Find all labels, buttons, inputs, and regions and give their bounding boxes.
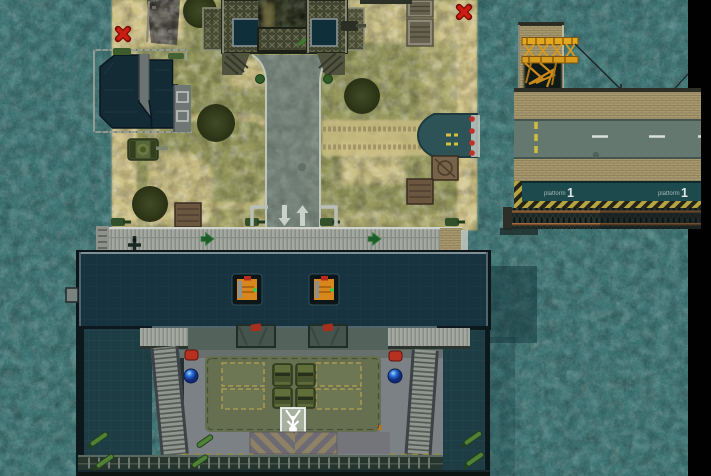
svg-text:platform: platform (544, 191, 566, 197)
svg-text:1: 1 (567, 186, 574, 200)
svg-text:platform: platform (658, 191, 680, 197)
svg-text:1: 1 (681, 186, 688, 200)
